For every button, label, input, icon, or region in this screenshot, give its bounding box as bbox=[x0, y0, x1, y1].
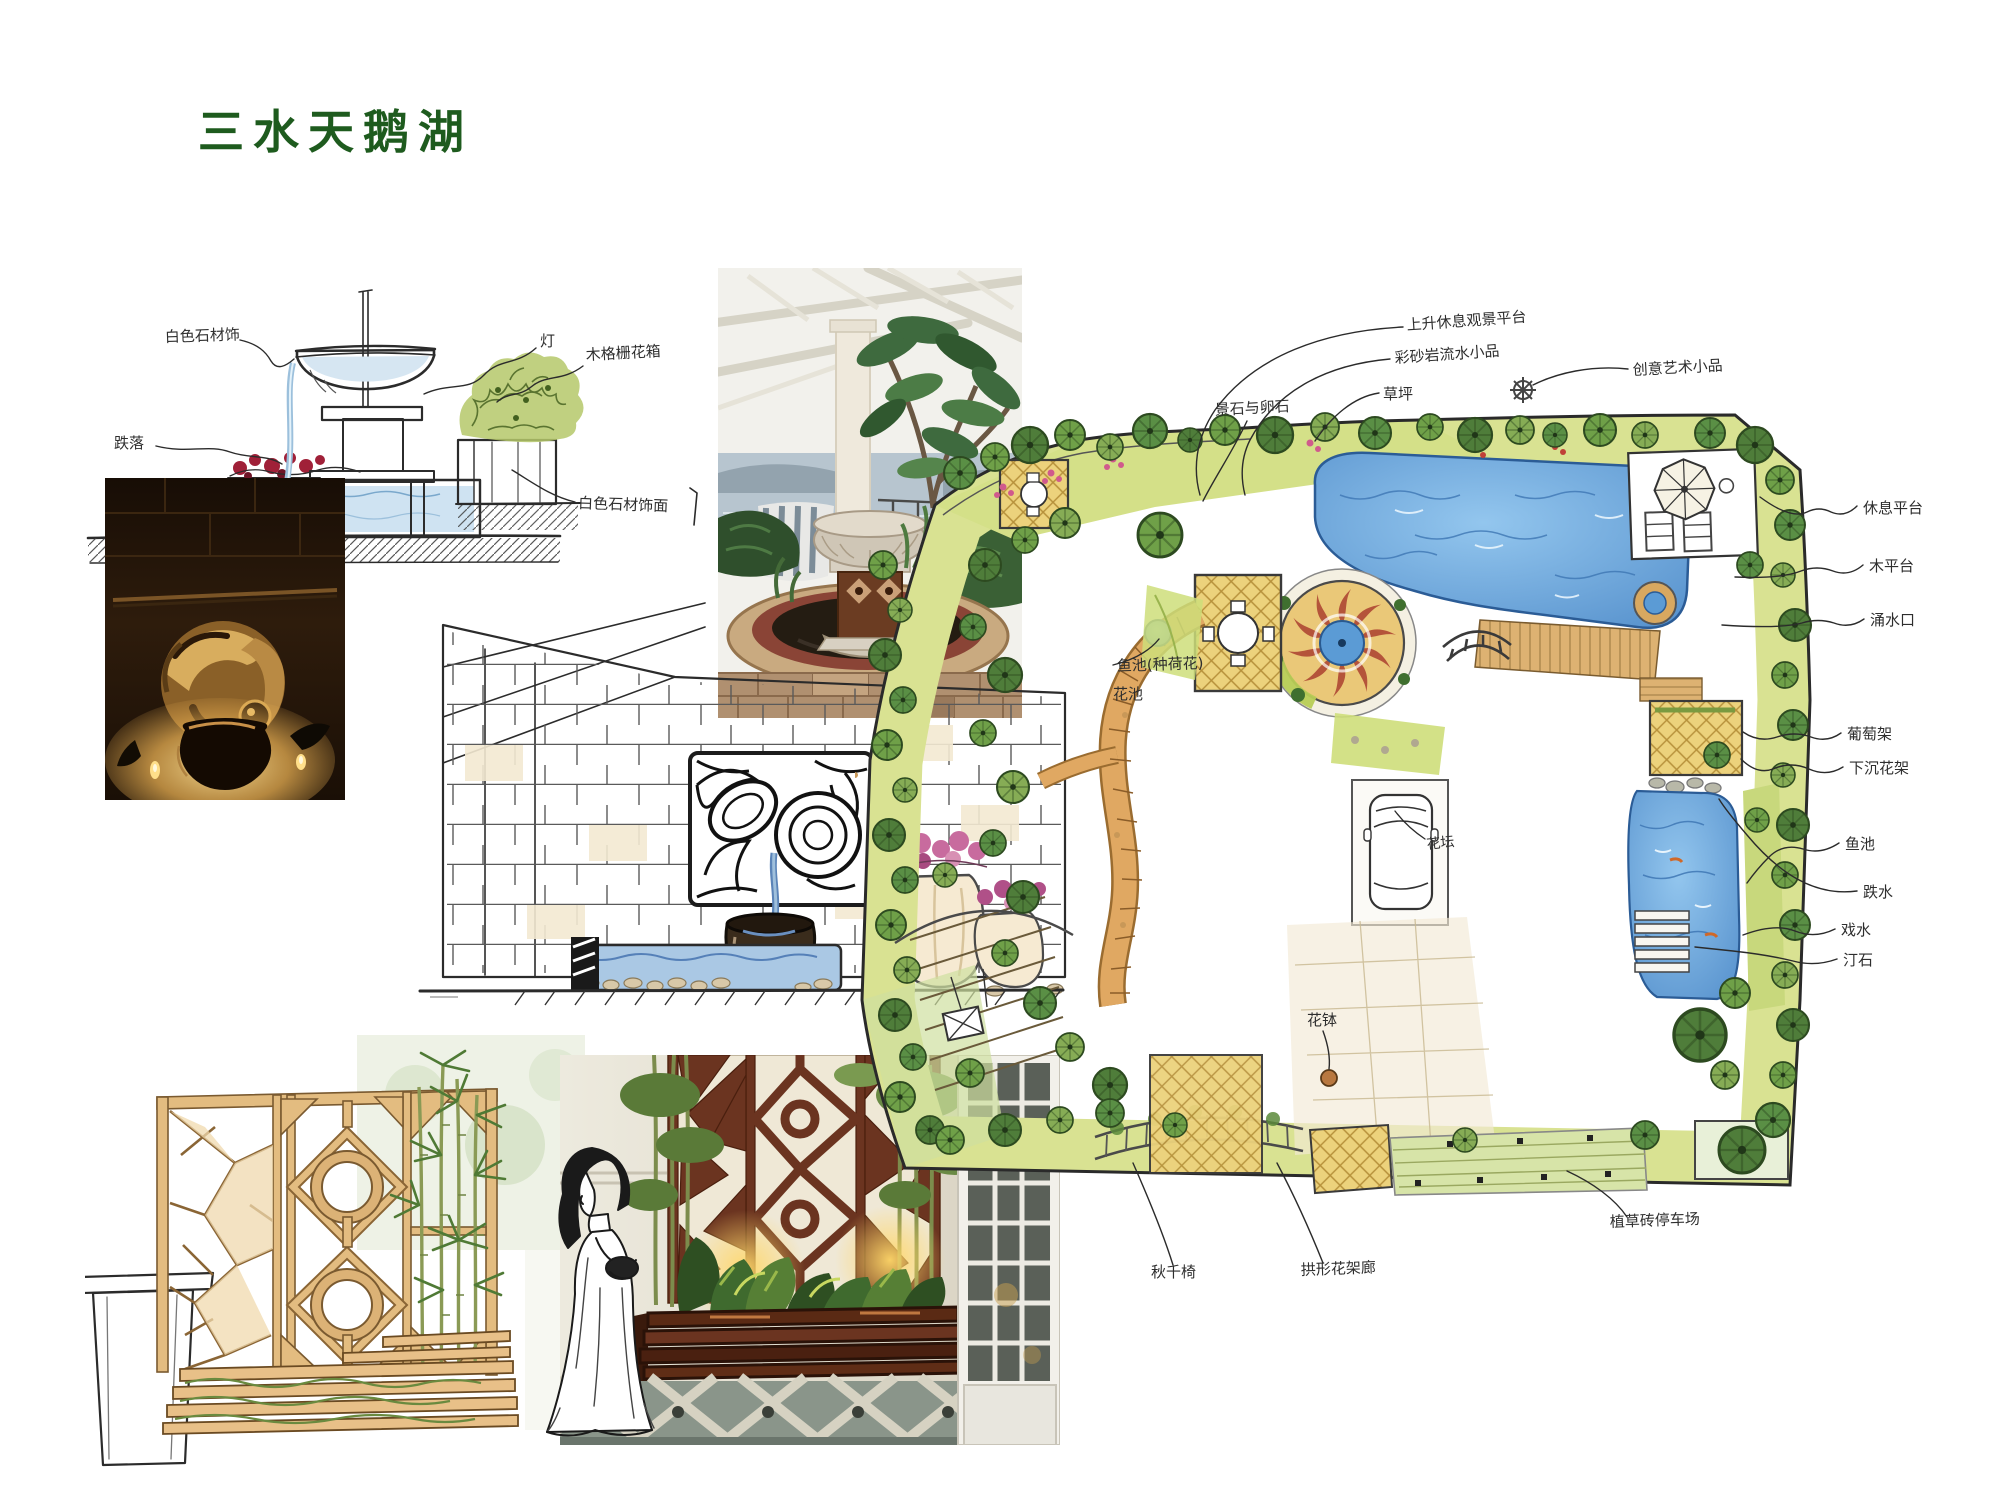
label-water-feature-top: 彩砂岩流水小品 bbox=[1394, 342, 1500, 367]
lattice-screen-sketch bbox=[85, 1035, 585, 1470]
garage-and-car bbox=[1352, 780, 1448, 925]
rest-platform bbox=[1628, 449, 1758, 559]
sun-mosaic-feature bbox=[1268, 569, 1416, 717]
label-stepping-stones: 汀石 bbox=[1843, 951, 1873, 969]
label-grape-trellis: 葡萄架 bbox=[1847, 725, 1892, 743]
label-lamp: 灯 bbox=[540, 332, 555, 350]
relief-night-photo bbox=[105, 478, 345, 800]
label-wood-planter: 木格栅花箱 bbox=[585, 342, 661, 364]
label-cascade: 跌落 bbox=[114, 434, 144, 452]
sketched-woman-figure bbox=[530, 1138, 675, 1443]
landscape-master-plan: 上升休息观景平台 彩砂岩流水小品 草坪 景石与卵石 创意艺术小品 休息平台 木平… bbox=[855, 235, 1985, 1310]
label-parterre: 花坛 bbox=[1426, 834, 1456, 853]
flower-pot-marker bbox=[1321, 1070, 1337, 1086]
presentation-slide: 三水天鹅湖 bbox=[0, 0, 2000, 1500]
label-lotus-pond: 鱼池(种荷花) bbox=[1117, 654, 1204, 675]
label-lawn: 草坪 bbox=[1383, 385, 1413, 403]
label-rocks: 景石与卵石 bbox=[1214, 397, 1290, 419]
label-sunken-trellis: 下沉花架 bbox=[1849, 759, 1909, 777]
page-title: 三水天鹅湖 bbox=[198, 96, 473, 162]
label-spring: 涌水口 bbox=[1870, 611, 1915, 629]
label-flower-bed: 花池 bbox=[1113, 685, 1143, 703]
label-rest-platform: 休息平台 bbox=[1863, 499, 1923, 517]
label-platform-top: 上升休息观景平台 bbox=[1406, 308, 1527, 334]
label-stone-trim: 白色石材饰 bbox=[165, 325, 241, 346]
label-art-piece: 创意艺术小品 bbox=[1632, 356, 1723, 379]
label-fish-pond: 鱼池 bbox=[1845, 835, 1875, 853]
label-arch-corridor: 拱形花架廊 bbox=[1301, 1258, 1377, 1279]
lattice-terrace bbox=[1195, 575, 1281, 691]
label-stone-facing: 白色石材饰面 bbox=[578, 494, 669, 515]
label-wood-deck: 木平台 bbox=[1869, 557, 1914, 575]
label-grass-paver-parking: 植草砖停车场 bbox=[1610, 1210, 1701, 1231]
label-cascade: 跌水 bbox=[1863, 883, 1893, 901]
label-flower-pot: 花钵 bbox=[1307, 1011, 1337, 1029]
art-piece-marker bbox=[1510, 377, 1536, 403]
label-swing-chair: 秋千椅 bbox=[1151, 1263, 1196, 1281]
grass-paver-parking-area bbox=[1390, 1128, 1647, 1195]
label-play-water: 戏水 bbox=[1841, 921, 1871, 939]
